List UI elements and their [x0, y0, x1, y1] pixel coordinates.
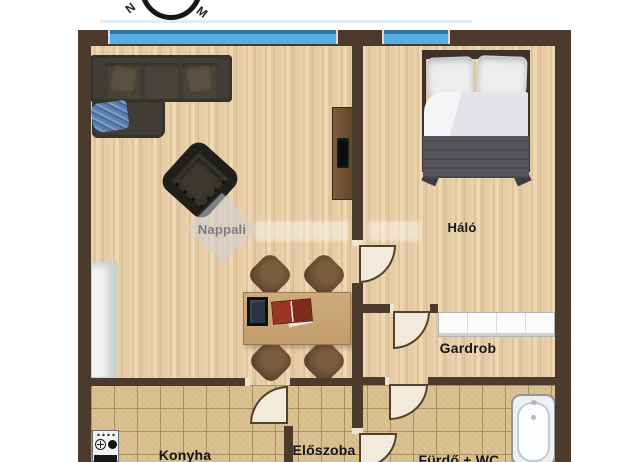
- watermark-text-ghost: [368, 221, 420, 241]
- white-cabinet: [92, 262, 118, 377]
- wall-bedroom-gardrob-stub: [430, 304, 438, 313]
- sofa-pillow: [184, 64, 214, 94]
- room-label-furdo-wc: Fürdő + WC: [419, 452, 500, 462]
- red-book: [271, 298, 313, 324]
- bathtub-faucet: [531, 400, 537, 405]
- wall-living-hall-bottom: [290, 378, 352, 386]
- window-sill-line: [100, 20, 472, 23]
- wall-left: [78, 30, 91, 462]
- bed-duvet: [424, 92, 528, 142]
- sofa-pillow: [108, 64, 138, 94]
- tv-icon: [337, 138, 349, 168]
- wall-living-bedroom: [352, 46, 363, 240]
- compass-letter-left: N: [123, 0, 138, 16]
- door-pivot: [245, 378, 250, 386]
- window-bedroom: [382, 30, 450, 44]
- stove-burner: [108, 440, 117, 449]
- room-label-konyha: Konyha: [159, 447, 212, 462]
- blue-blanket: [90, 100, 130, 134]
- bed-pillow: [476, 55, 527, 95]
- stove-burner: [95, 439, 106, 450]
- room-label-gardrob: Gardrob: [440, 340, 497, 356]
- room-label-halo: Háló: [448, 220, 477, 235]
- wall-living-kitchen: [91, 378, 250, 386]
- photo-frame: [247, 297, 268, 326]
- wall-right: [555, 30, 571, 462]
- wardrobe: [438, 312, 555, 337]
- stove-knobs: [95, 432, 116, 436]
- wall-bedroom-gardrob: [363, 304, 390, 313]
- oven-door: [94, 455, 117, 462]
- room-label-eloszoba: Előszoba: [292, 442, 355, 458]
- floor-plan: N M: [0, 0, 617, 462]
- bathtub-drain: [531, 415, 536, 420]
- window-living: [108, 30, 338, 44]
- bed-pillow: [426, 56, 474, 97]
- compass-icon: [140, 0, 202, 20]
- bed-blanket: [423, 136, 529, 178]
- wall-gardrob-bath-right: [428, 377, 555, 385]
- watermark-text-ghost: [255, 221, 349, 241]
- bathtub-basin: [517, 402, 550, 462]
- wall-living-hall: [352, 283, 363, 428]
- sofa-cushion: [144, 63, 180, 99]
